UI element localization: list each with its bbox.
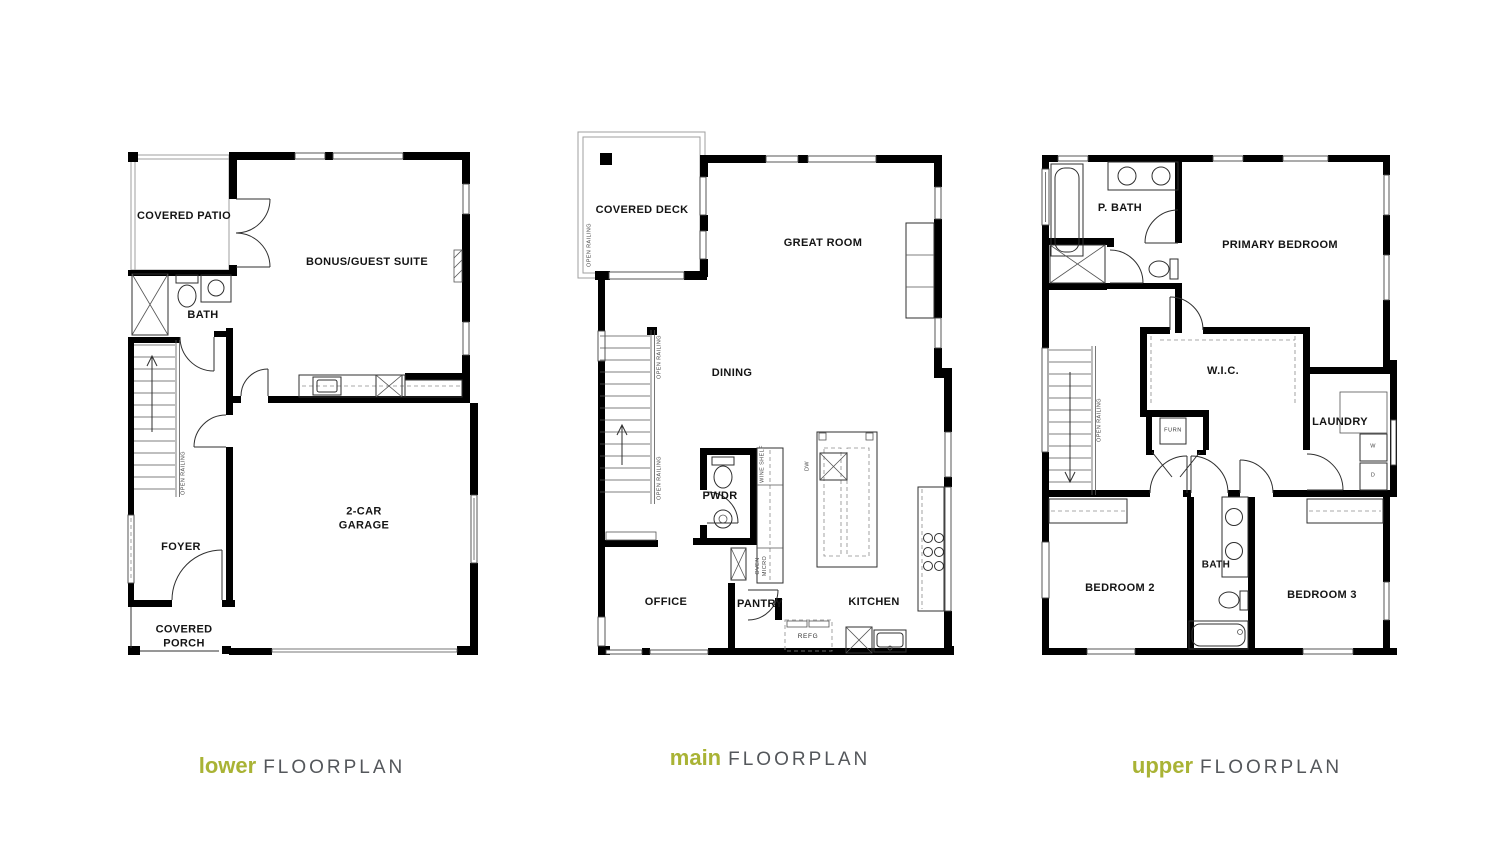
hatched-chase	[454, 250, 462, 282]
room-label-bath-upper: BATH	[1202, 559, 1230, 572]
sink-icon	[714, 510, 732, 528]
shower-icon	[1050, 245, 1105, 283]
media-niche	[906, 223, 934, 318]
main-floorplan-title: mainFLOORPLAN	[670, 745, 870, 771]
room-label-dining: DINING	[712, 366, 753, 380]
room-label-bath-lower: BATH	[187, 308, 218, 322]
stairs-icon	[1049, 346, 1096, 495]
annotation-wine-shelf: WINE SHELF	[759, 445, 766, 483]
room-label-kitchen: KITCHEN	[848, 595, 899, 609]
bathtub-icon	[1189, 621, 1248, 649]
shower-icon	[132, 274, 168, 335]
annotation-refg: REFG	[798, 633, 818, 641]
closet-bedroom3	[1307, 499, 1383, 523]
closet-bedroom2	[1049, 499, 1127, 523]
main-title-rest: FLOORPLAN	[728, 749, 870, 770]
room-label-great-room: GREAT ROOM	[784, 236, 862, 250]
toilet-icon	[1219, 591, 1248, 610]
lower-walls	[128, 152, 478, 655]
stairs-icon	[134, 340, 180, 497]
lower-title-rest: FLOORPLAN	[263, 757, 405, 778]
room-label-p-bath: P. BATH	[1098, 201, 1142, 215]
kitchen-island	[817, 432, 877, 567]
annotation-open-railing-upper: OPEN RAILING	[1096, 398, 1103, 442]
room-label-laundry: LAUNDRY	[1312, 415, 1368, 429]
room-label-primary-bedroom: PRIMARY BEDROOM	[1222, 238, 1338, 252]
room-label-wic: W.I.C.	[1207, 364, 1239, 378]
room-label-bedroom-2: BEDROOM 2	[1085, 581, 1155, 595]
annotation-open-railing-lower: OPEN RAILING	[180, 451, 187, 495]
annotation-oven-micro: OVENMICRO	[755, 556, 769, 576]
room-label-foyer: FOYER	[161, 540, 201, 554]
annotation-open-railing-main-1: OPEN RAILING	[656, 335, 663, 379]
room-label-bonus-guest-suite: BONUS/GUEST SUITE	[306, 255, 428, 269]
room-label-pwdr: PWDR	[702, 489, 737, 503]
floorplan-linework	[0, 0, 1500, 849]
range-icon	[918, 487, 944, 611]
double-vanity	[1108, 162, 1178, 190]
desk-ledge	[606, 532, 656, 540]
main-walls	[595, 155, 954, 655]
room-label-bedroom-3: BEDROOM 3	[1287, 588, 1357, 602]
annotation-island-dw: DW	[804, 461, 811, 471]
main-title-accent: main	[670, 745, 721, 770]
stairs-icon	[600, 330, 655, 504]
room-label-garage: 2-CARGARAGE	[339, 505, 389, 534]
annotation-dryer: D	[1371, 472, 1375, 479]
room-label-covered-porch: COVEREDPORCH	[156, 623, 213, 652]
garage-door-line	[272, 649, 457, 652]
annotation-open-railing-main-2: OPEN RAILING	[656, 456, 663, 500]
annotation-open-railing-deck: OPEN RAILING	[586, 223, 593, 267]
room-label-pantry: PANTRY	[737, 597, 783, 611]
room-label-office: OFFICE	[645, 595, 687, 609]
sink-icon	[201, 275, 231, 302]
upper-floorplan-title: upperFLOORPLAN	[1132, 753, 1342, 779]
room-label-covered-patio: COVERED PATIO	[137, 209, 231, 223]
toilet-icon	[1149, 259, 1178, 279]
lower-floorplan	[128, 152, 478, 655]
toilet-icon	[712, 457, 734, 488]
annotation-furn: FURN	[1164, 427, 1182, 434]
lower-title-accent: lower	[199, 753, 256, 778]
upper-title-accent: upper	[1132, 753, 1193, 778]
room-label-covered-deck: COVERED DECK	[596, 203, 689, 217]
floorplan-sheet: COVERED PATIO BONUS/GUEST SUITE BATH FOY…	[0, 0, 1500, 849]
lower-floorplan-title: lowerFLOORPLAN	[199, 753, 406, 779]
upper-title-rest: FLOORPLAN	[1200, 757, 1342, 778]
toilet-icon	[176, 275, 198, 307]
annotation-washer: W	[1370, 443, 1376, 450]
